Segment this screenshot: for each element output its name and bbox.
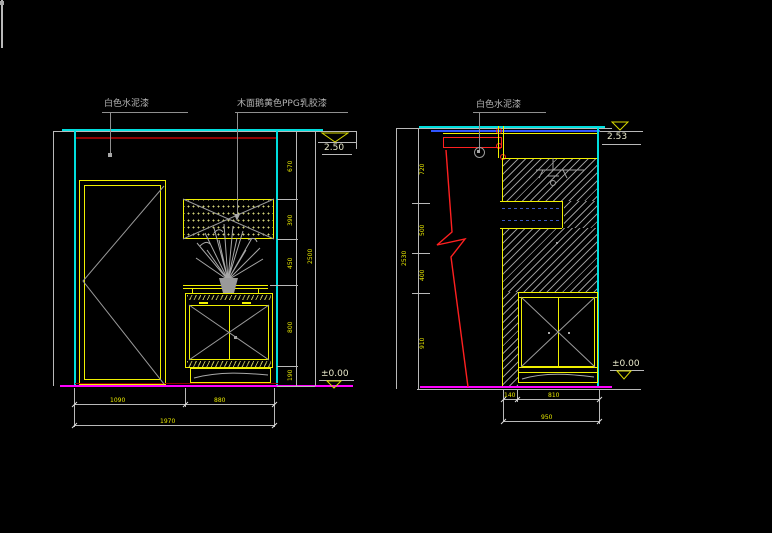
leader-arrow-icon — [234, 214, 240, 221]
door-cross-lines — [521, 297, 595, 367]
kick-wave-line — [522, 374, 594, 379]
elevation-marker-icon — [612, 122, 628, 130]
kick-wave-line — [194, 373, 268, 378]
elevation-marker-icon — [322, 133, 348, 142]
section-break-line — [437, 150, 468, 387]
linework-svg-layer — [0, 0, 772, 533]
plant-icon — [196, 224, 263, 293]
panel-cross-lines — [183, 199, 274, 239]
door-swing-icon — [83, 186, 164, 384]
door-cross-lines — [189, 305, 269, 360]
ceiling-lamp-icon — [536, 158, 584, 186]
elevation-marker-icon — [327, 381, 341, 388]
cad-drawing-canvas: 1090 880 1970 670 390 450 800 190 2500 2… — [0, 0, 772, 533]
elevation-marker-icon — [617, 371, 631, 379]
